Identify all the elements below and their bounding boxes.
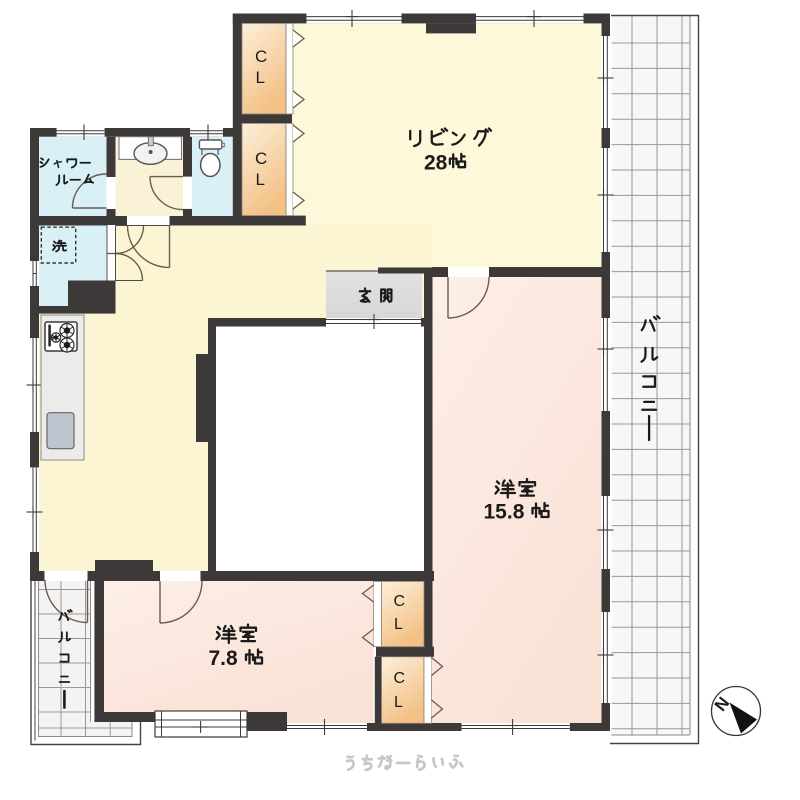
svg-text:L: L	[394, 694, 403, 711]
svg-text:C: C	[394, 670, 406, 687]
svg-text:L: L	[394, 616, 403, 633]
svg-text:L: L	[256, 170, 265, 189]
svg-text:C: C	[255, 47, 267, 66]
svg-text:7.8: 7.8	[209, 647, 239, 670]
svg-text:C: C	[255, 149, 267, 168]
svg-text:L: L	[256, 68, 265, 87]
svg-text:C: C	[394, 593, 406, 610]
svg-text:28: 28	[424, 152, 448, 175]
svg-text:15.8: 15.8	[484, 501, 525, 524]
